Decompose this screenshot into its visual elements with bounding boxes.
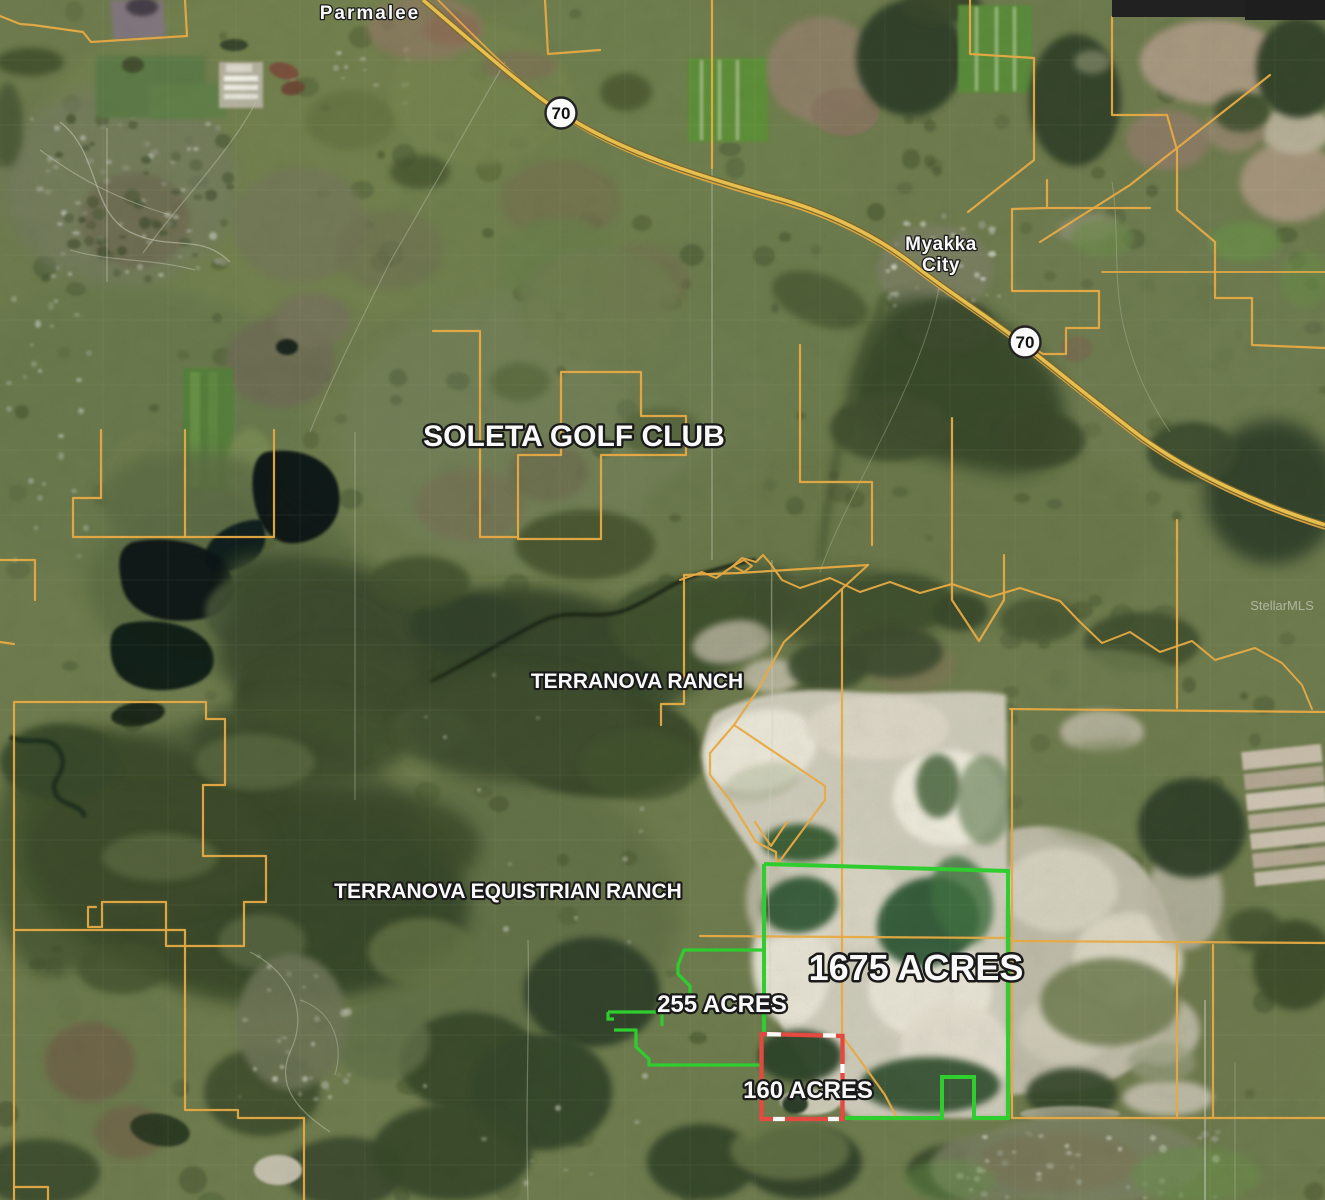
svg-text:StellarMLS: StellarMLS (1250, 598, 1314, 613)
